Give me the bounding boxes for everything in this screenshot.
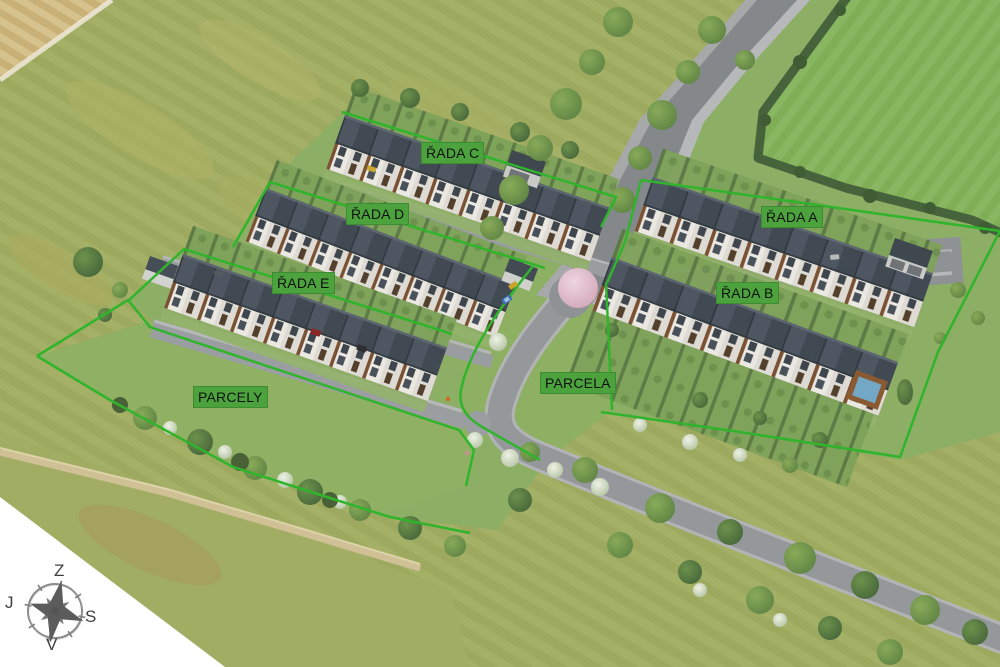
car (830, 254, 839, 260)
pedestrian (465, 451, 469, 455)
label-rada-a: ŘADA A (761, 206, 823, 228)
compass-letter-east: S (85, 607, 96, 627)
label-rada-e: ŘADA E (272, 272, 335, 294)
pedestrian (446, 397, 450, 401)
compass-letter-south: V (46, 635, 57, 655)
label-rada-c: ŘADA C (421, 142, 484, 164)
label-rada-b: ŘADA B (716, 282, 779, 304)
blossom-tree-pink (558, 268, 598, 308)
label-parcely: PARCELY (193, 386, 268, 408)
site-plan-rendering (0, 0, 1000, 667)
aerial-site-plan: ŘADA C ŘADA D ŘADA E ŘADA A ŘADA B PARCE… (0, 0, 1000, 667)
label-parcela: PARCELA (540, 372, 616, 394)
compass-letter-north: Z (54, 561, 64, 581)
label-rada-d: ŘADA D (346, 203, 409, 225)
compass-letter-west: J (5, 593, 14, 613)
